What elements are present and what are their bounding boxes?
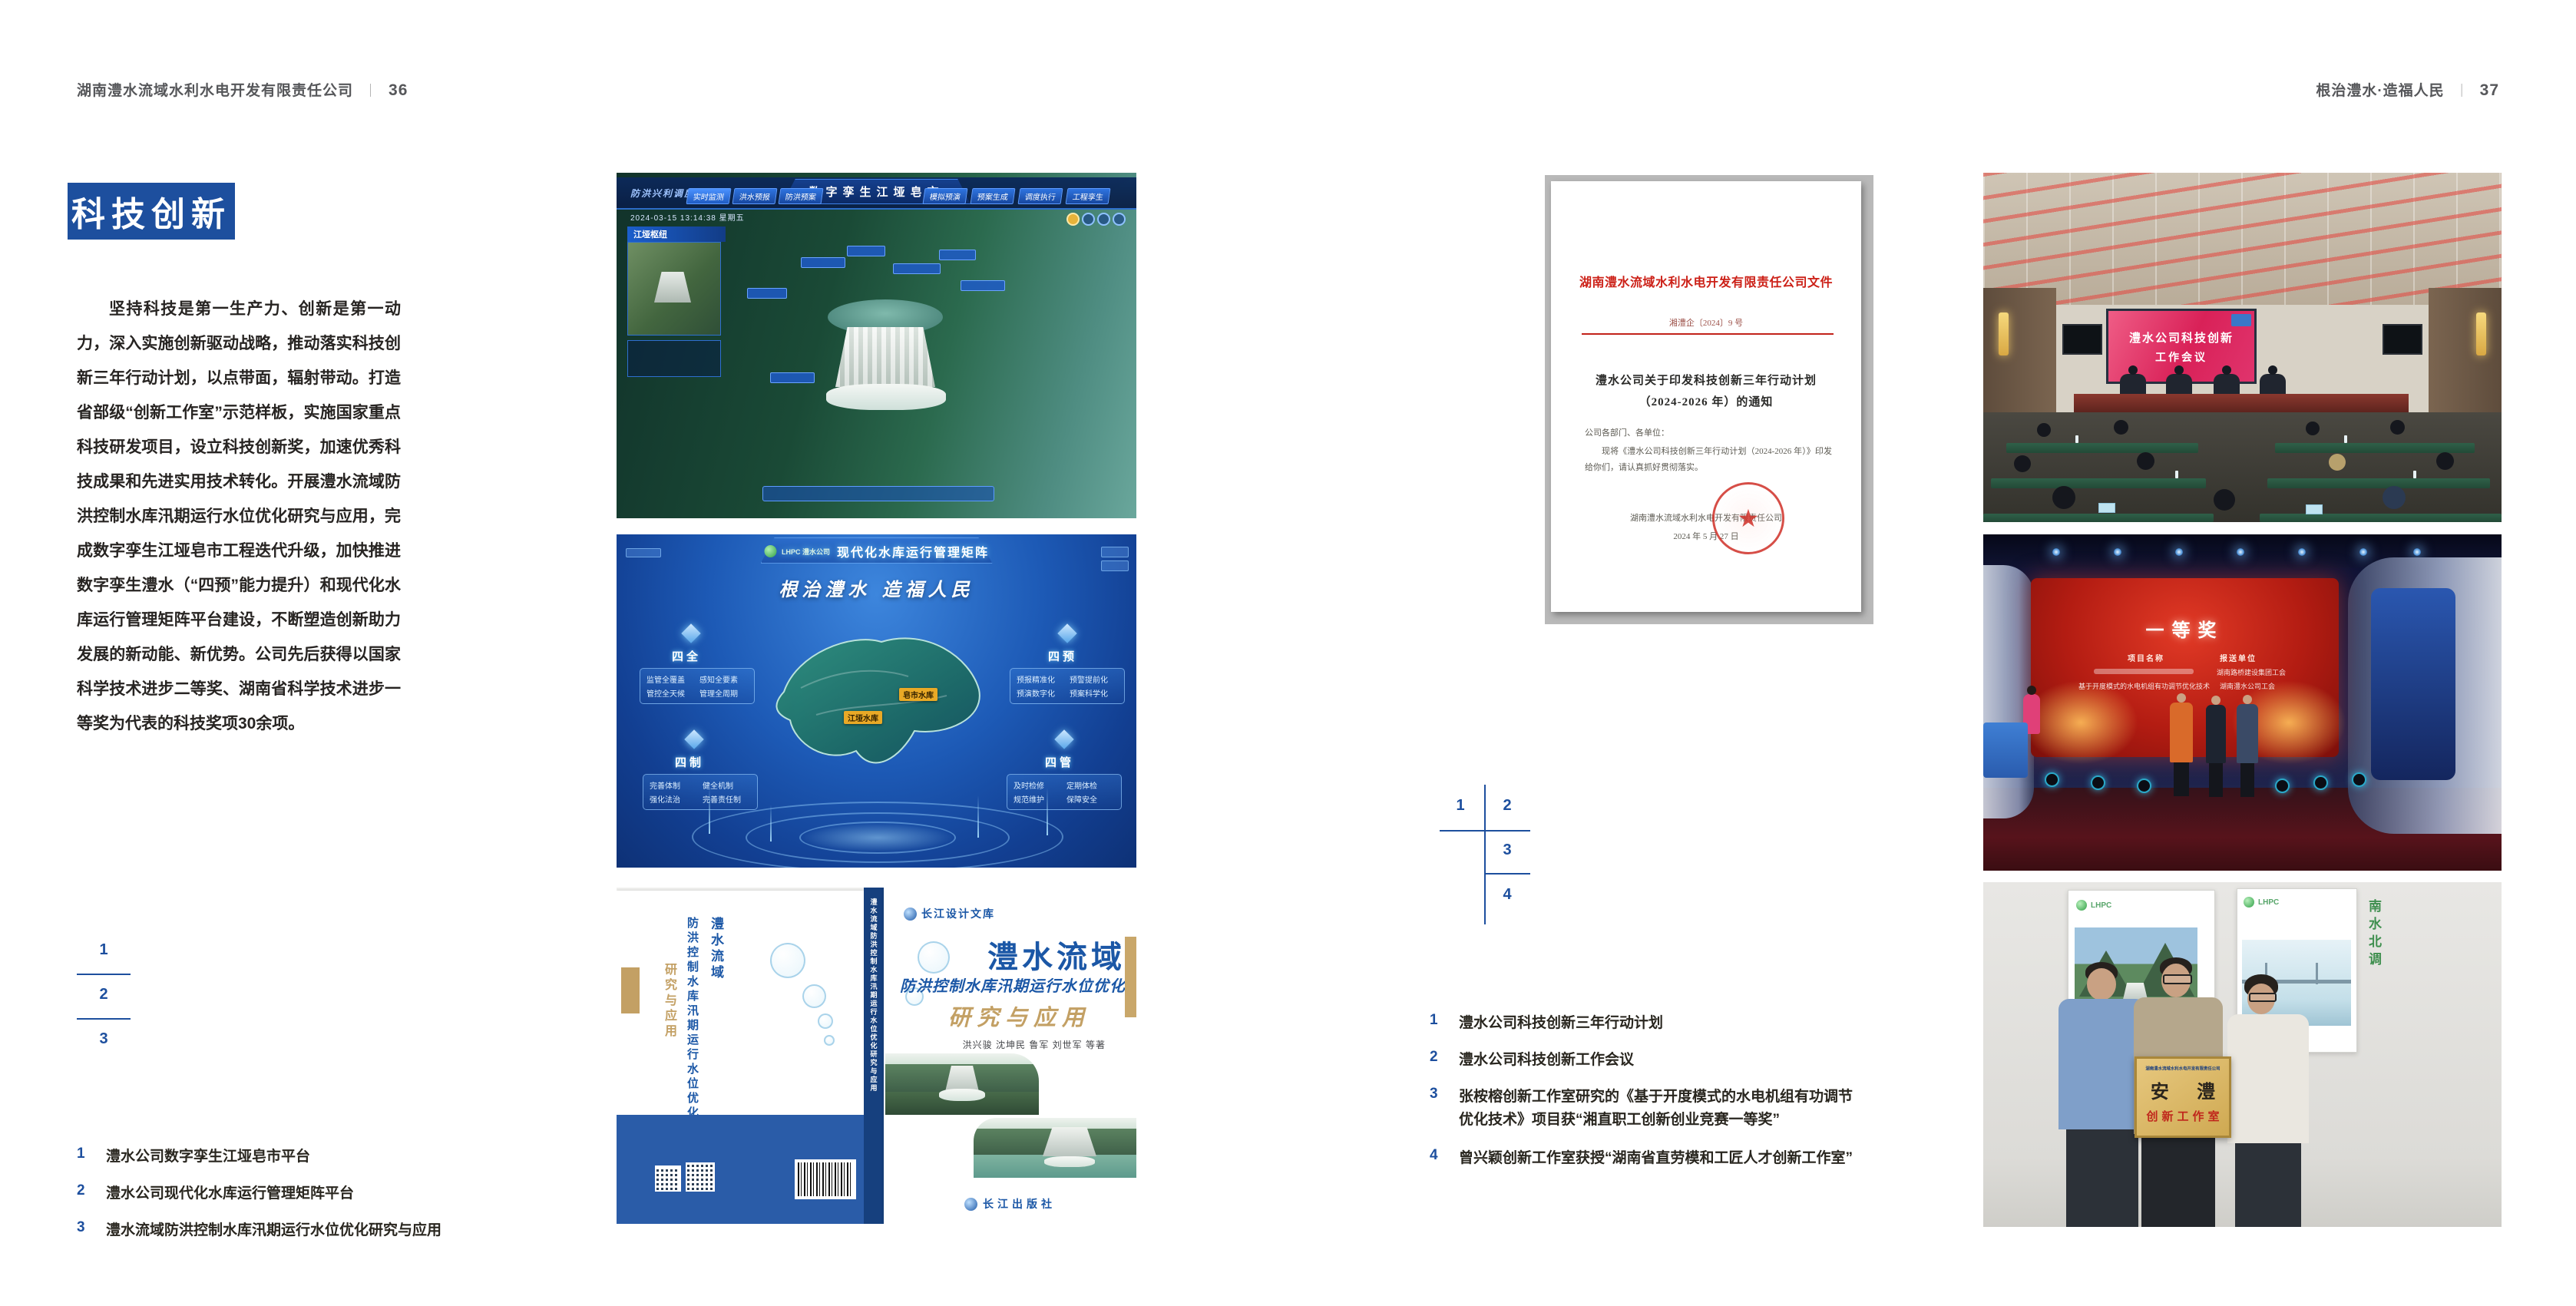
- document-salutation: 公司各部门、各单位：: [1585, 425, 1832, 441]
- left-header-separator: ｜: [364, 84, 378, 98]
- book-front-cover: 长江设计文库 澧水流域 防洪控制水库汛期运行水位优化 研究与应用 洪兴骏 沈坤民…: [884, 888, 1136, 1224]
- spotlight: [2237, 548, 2244, 556]
- qr-code: [655, 1165, 681, 1192]
- caption-text: 澧水公司科技创新工作会议: [1459, 1049, 1634, 1072]
- dashboard-nav-button: 调度执行: [1018, 188, 1063, 204]
- locate-icon: [1097, 213, 1110, 226]
- award-column-header: 报送单位: [2220, 652, 2257, 663]
- group-panel: 完善体制 健全机制 强化法治 完善责任制: [643, 774, 758, 810]
- spotlight: [2413, 548, 2421, 556]
- spotlight: [2359, 548, 2367, 556]
- layer-icon: [1082, 213, 1095, 226]
- map-label: 江垭水库: [844, 711, 882, 724]
- left-caption-row: 1 澧水公司数字孪生江垭皂市平台: [77, 1146, 476, 1169]
- person-head: [2087, 968, 2116, 1000]
- figure-index-divider: [1484, 873, 1530, 875]
- award-column-header: 项目名称: [2128, 652, 2164, 663]
- book-subtitle: 防洪控制水库汛期运行水位优化: [900, 974, 1126, 996]
- audience-desk: [1983, 514, 2214, 522]
- document-signature: 湖南澧水流域水利水电开发有限责任公司: [1551, 511, 1861, 524]
- spotlight: [2175, 548, 2183, 556]
- caption-text: 张桉榕创新工作室研究的《基于开度模式的水电机组有功调节优化技术》项目获“湘直职工…: [1459, 1086, 1858, 1132]
- group-name: 四管: [1045, 754, 1074, 770]
- caption-number: 1: [77, 1146, 106, 1162]
- data-label-chip: [747, 288, 787, 299]
- wall-tv-screen: [2383, 324, 2422, 355]
- radar-core: [799, 822, 956, 854]
- data-label-chip: [770, 372, 815, 383]
- qr-code: [686, 1162, 715, 1192]
- caption-number: 2: [77, 1182, 106, 1199]
- award-project: 基于开度模式的水电机组有功调节优化技术: [2078, 681, 2210, 691]
- dashboard-nav-button: 工程孪生: [1066, 188, 1111, 204]
- group-item: 规范维护: [1014, 793, 1062, 805]
- presenter-suit: [2206, 705, 2226, 763]
- group-item: 管理全周期: [699, 687, 748, 699]
- audience-area: [1983, 412, 2502, 522]
- book-authors: 洪兴骏 沈坤民 鲁军 刘世军 等著: [963, 1038, 1106, 1051]
- light-pillar: [1047, 788, 1048, 835]
- spotlight: [2298, 548, 2306, 556]
- left-caption-row: 3 澧水流域防洪控制水库汛期运行水位优化研究与应用: [77, 1219, 476, 1242]
- dashboard-panel-header: 江垭枢纽: [627, 226, 726, 242]
- audience-desk: [2260, 514, 2502, 522]
- wall-tv-screen: [2062, 324, 2102, 355]
- document-number: 湘澧企〔2024〕9 号: [1551, 316, 1861, 329]
- matrix-title: 现代化水库运行管理矩阵: [837, 542, 989, 560]
- awardee-legs: [2240, 763, 2254, 797]
- left-page-header: 湖南澧水流域水利水电开发有限责任公司｜36: [77, 79, 408, 100]
- audience-head: [2114, 420, 2128, 435]
- left-figure-index-2: 2: [77, 986, 131, 1003]
- group-name: 四全: [672, 648, 701, 664]
- dashboard-nav-button: 防洪预案: [779, 188, 824, 204]
- group-item: 预报精准化: [1017, 673, 1065, 685]
- group-item: 强化法治: [650, 793, 698, 805]
- dashboard-panel-photo: [627, 242, 721, 336]
- audience-head: [2390, 420, 2405, 435]
- caption-text: 澧水公司数字孪生江垭皂市平台: [106, 1146, 310, 1169]
- group-item: 及时检修: [1014, 779, 1062, 791]
- book-subtitle-2: 研究与应用: [948, 1000, 1090, 1032]
- light-pillar: [977, 795, 979, 838]
- caption-number: 3: [77, 1219, 106, 1236]
- group-item: 保障安全: [1066, 793, 1115, 805]
- publisher-globe-icon: [964, 1198, 977, 1211]
- screen-glow: [2023, 680, 2138, 765]
- light-pillar: [709, 788, 710, 834]
- front-cover-tan-bar: [1125, 937, 1136, 1017]
- left-header-company: 湖南澧水流域水利水电开发有限责任公司: [77, 83, 353, 99]
- group-item: 定期体检: [1066, 779, 1115, 791]
- tissue-box: [2306, 504, 2323, 514]
- lhpc-logo-text: LHPC 澧水公司: [782, 547, 830, 557]
- group-name: 四预: [1048, 648, 1077, 664]
- photo-innovation-conference: 澧水公司科技创新 工作会议: [1983, 173, 2502, 522]
- document-subject-line2: （2024-2026 年）的通知: [1551, 393, 1861, 409]
- book-spine: 澧水流域防洪控制水库汛期运行水位优化研究与应用: [864, 888, 884, 1224]
- right-caption-row: 1 澧水公司科技创新三年行动计划: [1430, 1012, 1860, 1035]
- plaque-org-line: 湖南澧水流域水利水电开发有限责任公司: [2141, 1065, 2224, 1071]
- group-panel: 及时检修 定期体检 规范维护 保障安全: [1007, 774, 1122, 810]
- moving-head-light: [2045, 772, 2059, 787]
- water-bottle: [2175, 471, 2178, 478]
- book-title: 澧水流域: [987, 932, 1126, 977]
- right-page-number: 37: [2480, 81, 2499, 99]
- glasses-icon: [2249, 993, 2277, 1002]
- audience-head: [2436, 452, 2454, 470]
- group-panel: 监管全覆盖 感知全要素 管控全天候 管理全周期: [640, 668, 755, 704]
- data-label-chip: [893, 263, 941, 274]
- rostrum-speaker: [2260, 374, 2286, 394]
- spotlight: [2052, 548, 2060, 556]
- left-figure-index-1: 1: [77, 941, 131, 959]
- matrix-mini-button: [1101, 560, 1129, 571]
- tissue-box: [2098, 503, 2115, 513]
- alert-icon: [1066, 213, 1080, 226]
- back-cover-blue-band: [617, 1115, 864, 1224]
- dashboard-nav-button: 预案生成: [971, 188, 1016, 204]
- matrix-header: LHPC 澧水公司 现代化水库运行管理矩阵: [764, 542, 989, 560]
- group-panel: 预报精准化 预警提前化 预演数字化 预案科学化: [1010, 668, 1125, 704]
- dashboard-panel-title: 江垭枢纽: [633, 228, 667, 240]
- section-title-box: 科技创新: [68, 183, 235, 240]
- dashboard-nav-button: 模拟预演: [923, 188, 968, 204]
- dam-wall: [835, 327, 935, 387]
- publisher-globe-icon: [904, 908, 917, 921]
- caption-text: 曾兴颖创新工作室获授“湖南省直劳模和工匠人才创新工作室”: [1459, 1147, 1853, 1170]
- book-back-cover: 澧水流域 防洪控制水库汛期运行水位优化 研究与应用: [617, 891, 864, 1221]
- group-item: 完善体制: [650, 779, 698, 791]
- data-label-chip: [847, 246, 885, 256]
- figure-index-divider: [77, 974, 131, 975]
- lhpc-logo-icon: LHPC: [2244, 897, 2279, 908]
- screen-title-line1: 澧水公司科技创新: [2108, 329, 2254, 346]
- series-name: 长江设计文库: [921, 906, 995, 921]
- stage-side-screen: [2371, 588, 2455, 780]
- water-bubble: [802, 984, 826, 1008]
- audience-head: [2306, 422, 2320, 435]
- group-item: 预案科学化: [1070, 687, 1118, 699]
- dashboard-mode-label: 防洪兴利调度: [630, 187, 695, 200]
- spillway-foam: [826, 384, 946, 410]
- data-label-chip: [801, 257, 845, 268]
- dashboard-subpanel: [627, 340, 721, 377]
- conference-wall: [1983, 288, 2056, 426]
- document-paper: 湖南澧水流域水利水电开发有限责任公司文件 湘澧企〔2024〕9 号 澧水公司关于…: [1551, 181, 1861, 612]
- audience-head: [2329, 454, 2346, 471]
- person-legs: [2066, 1129, 2138, 1227]
- dashboard-nav-button: 洪水预报: [732, 188, 778, 204]
- wall-lamp: [2476, 312, 2486, 355]
- host-podium: [1983, 722, 2028, 778]
- seal-star-icon: ★: [1738, 504, 1760, 533]
- group-item: 感知全要素: [699, 673, 748, 685]
- left-page-number: 36: [389, 81, 408, 99]
- screen-title-line2: 工作会议: [2108, 349, 2254, 365]
- right-figure-index-1: 1: [1433, 797, 1487, 815]
- rostrum-speaker: [2166, 374, 2192, 394]
- document-body: 现将《澧水公司科技创新三年行动计划（2024-2026 年）》印发给你们，请认真…: [1585, 444, 1832, 476]
- document-org-title: 湖南澧水流域水利水电开发有限责任公司文件: [1551, 272, 1861, 290]
- audience-head: [2014, 455, 2031, 472]
- presenter-legs: [2209, 763, 2223, 797]
- publisher-row: 长江出版社: [884, 1196, 1136, 1212]
- audience-head: [2037, 423, 2051, 437]
- cover-photo-dam-1: [885, 1053, 1039, 1115]
- caption-number: 1: [1430, 1012, 1459, 1029]
- right-figure-index-2: 2: [1480, 797, 1534, 815]
- caption-number: 2: [1430, 1049, 1459, 1066]
- plaque-name: 安 澧: [2137, 1076, 2229, 1103]
- matrix-mini-button: [1101, 547, 1129, 557]
- innovation-studio-plaque: 湖南澧水流域水利水电开发有限责任公司 安 澧 创新工作室: [2135, 1056, 2231, 1138]
- section-title: 科技创新: [71, 187, 231, 236]
- left-figure-index-3: 3: [77, 1030, 131, 1048]
- group-icon: [681, 623, 700, 643]
- person-legs: [2235, 1143, 2301, 1227]
- rostrum-speaker: [2214, 374, 2240, 394]
- person-blue-polo: [2058, 999, 2146, 1129]
- figure-index-divider: [77, 1018, 131, 1020]
- water-bottle: [2344, 435, 2347, 443]
- matrix-datetime-chip: [626, 548, 661, 557]
- data-label-chip: [939, 250, 976, 260]
- matrix-slogan: 根治澧水 造福人民: [617, 574, 1136, 601]
- awardee-blue: [2237, 704, 2258, 763]
- moving-head-light: [2352, 772, 2366, 787]
- water-bottle: [2413, 471, 2416, 478]
- document-date: 2024 年 5 月 27 日: [1551, 530, 1861, 542]
- caption-text: 澧水公司科技创新三年行动计划: [1459, 1012, 1663, 1035]
- dashboard-nav-button: 实时监测: [686, 188, 732, 204]
- poster-calligraphy: 南水北调: [2364, 899, 2383, 970]
- audience-head: [2383, 486, 2406, 509]
- right-figure-index-4: 4: [1480, 886, 1534, 904]
- rostrum-speaker: [2120, 374, 2146, 394]
- group-item: 预演数字化: [1017, 687, 1065, 699]
- dashboard-bottom-toolbar: [762, 486, 994, 501]
- publisher-name: 长江出版社: [983, 1196, 1056, 1212]
- caption-text: 澧水公司现代化水库运行管理矩阵平台: [106, 1182, 354, 1205]
- back-cover-tan-tab: [621, 967, 640, 1013]
- moving-head-light: [2091, 775, 2105, 790]
- conference-wall: [2429, 288, 2502, 426]
- screen-logo-badge: [2231, 314, 2251, 326]
- audience-head: [2137, 452, 2154, 470]
- figure-book-cover: 澧水流域 防洪控制水库汛期运行水位优化 研究与应用 澧水流域防洪控制水库汛期运行…: [617, 888, 1136, 1224]
- awardee-legs: [2174, 762, 2189, 796]
- right-figure-index-3: 3: [1480, 841, 1534, 859]
- water-bubble: [824, 1035, 835, 1046]
- water-bubble: [918, 941, 950, 974]
- right-page-header: 根治澧水·造福人民｜37: [2316, 79, 2499, 100]
- light-pillar: [770, 805, 772, 841]
- person-white-tee: [2227, 1014, 2309, 1143]
- right-caption-row: 4 曾兴颖创新工作室获授“湖南省直劳模和工匠人才创新工作室”: [1430, 1147, 1890, 1170]
- plaque-subtitle: 创新工作室: [2137, 1108, 2229, 1124]
- figure-official-document: 湖南澧水流域水利水电开发有限责任公司文件 湘澧企〔2024〕9 号 澧水公司关于…: [1545, 175, 1873, 624]
- glasses-icon: [2163, 974, 2192, 984]
- wall-lamp: [1999, 312, 2009, 355]
- right-header-separator: ｜: [2455, 84, 2469, 98]
- audience-head: [2052, 486, 2075, 509]
- dam-3d-view: [812, 299, 958, 415]
- awardee-orange: [2170, 703, 2193, 762]
- map-label: 皂市水库: [899, 688, 937, 701]
- basin-terrain-map: [755, 619, 1000, 795]
- lhpc-logo-icon: [764, 545, 776, 557]
- water-bubble: [770, 943, 805, 978]
- caption-text: 澧水流域防洪控制水库汛期运行水位优化研究与应用: [106, 1219, 441, 1242]
- caption-number: 3: [1430, 1086, 1459, 1103]
- moving-head-light: [2313, 775, 2328, 790]
- right-caption-row: 2 澧水公司科技创新工作会议: [1430, 1049, 1860, 1072]
- group-icon: [1057, 623, 1076, 643]
- audience-desk: [2006, 443, 2198, 453]
- person-legs: [2141, 1134, 2215, 1227]
- book-spread: 湖南澧水流域水利水电开发有限责任公司｜36 科技创新 坚持科技是第一生产力、创新…: [0, 0, 2576, 1306]
- document-subject-line1: 澧水公司关于印发科技创新三年行动计划: [1551, 372, 1861, 388]
- group-item: 管控全天候: [646, 687, 695, 699]
- figure-digital-twin-dashboard: 数字孪生江垭皂市 防洪兴利调度 实时监测 洪水预报 防洪预案 模拟预演 预案生成…: [617, 173, 1136, 518]
- moving-head-light: [2137, 779, 2151, 793]
- audience-desk: [2267, 478, 2490, 488]
- award-unit: 湖南澧水公司工会: [2220, 681, 2275, 691]
- group-icon: [1054, 729, 1073, 749]
- figure-matrix-platform: LHPC 澧水公司 现代化水库运行管理矩阵 根治澧水 造福人民 皂市水库 江垭水…: [617, 534, 1136, 868]
- water-bubble: [818, 1013, 833, 1029]
- audience-head: [2214, 489, 2235, 511]
- spine-title: 澧水流域防洪控制水库汛期运行水位优化研究与应用: [869, 898, 879, 1093]
- award-unit: 湖南路桥建设集团工会: [2217, 667, 2286, 677]
- series-logo-row: 长江设计文库: [904, 906, 995, 921]
- figure-index-divider: [1440, 830, 1530, 832]
- compass-icon: [1113, 213, 1126, 226]
- water-bottle: [2075, 435, 2078, 443]
- left-caption-row: 2 澧水公司现代化水库运行管理矩阵平台: [77, 1182, 476, 1205]
- right-header-slogan: 根治澧水·造福人民: [2316, 83, 2444, 99]
- moving-head-light: [2275, 779, 2290, 793]
- spotlight: [2114, 548, 2121, 556]
- audience-desk: [1991, 478, 2206, 488]
- dam-thumbnail: [654, 272, 691, 303]
- barcode: [795, 1159, 856, 1199]
- body-paragraph: 坚持科技是第一生产力、创新是第一动力，深入实施创新驱动战略，推动落实科技创新三年…: [77, 292, 401, 741]
- blurred-project-line: [2094, 669, 2194, 674]
- right-caption-row: 3 张桉榕创新工作室研究的《基于开度模式的水电机组有功调节优化技术》项目获“湘直…: [1430, 1086, 1861, 1132]
- official-red-seal: ★: [1712, 482, 1784, 554]
- caption-number: 4: [1430, 1147, 1459, 1164]
- cover-photo-dam-2: [974, 1118, 1136, 1178]
- group-icon: [684, 729, 703, 749]
- photo-award-ceremony: 一等奖 项目名称 报送单位 基于开度模式的水电机组有功调节优化技术 湖南路桥建设…: [1983, 534, 2502, 871]
- dashboard-timestamp: 2024-03-15 13:14:38 星期五: [630, 211, 745, 223]
- group-item: 预警提前化: [1070, 673, 1118, 685]
- award-title: 一等奖: [2031, 615, 2339, 642]
- photo-studio-plaque: LHPC LHPC 南水北调: [1983, 882, 2502, 1227]
- data-label-chip: [961, 280, 1005, 291]
- rostrum-table: [2074, 394, 2409, 412]
- group-name: 四制: [675, 754, 704, 770]
- conference-ceiling: [1983, 173, 2502, 305]
- document-red-rule: [1582, 333, 1834, 335]
- lhpc-logo-icon: LHPC: [2076, 900, 2111, 911]
- group-item: 监管全覆盖: [646, 673, 695, 685]
